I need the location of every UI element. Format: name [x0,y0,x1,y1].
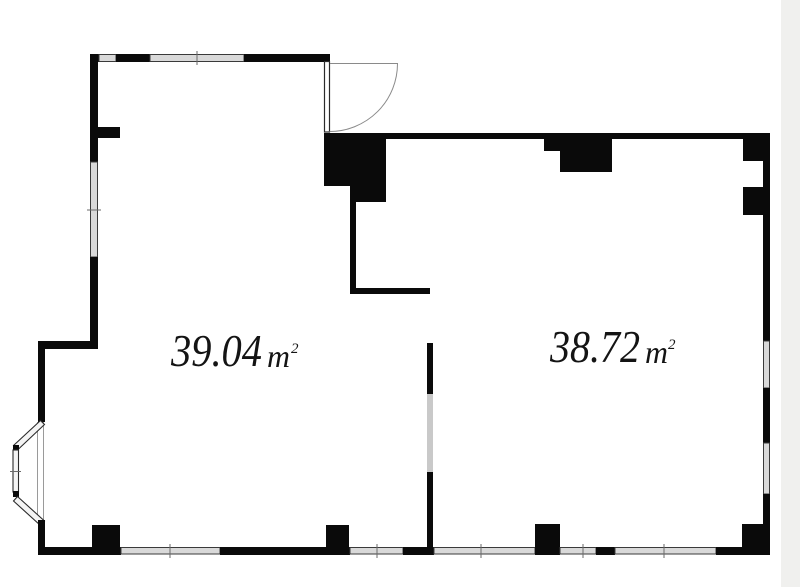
svg-text:2: 2 [291,341,299,357]
svg-text:m: m [645,334,668,370]
svg-text:2: 2 [668,337,676,353]
svg-text:38.72: 38.72 [549,321,640,372]
svg-text:39.04: 39.04 [170,325,262,376]
svg-text:m: m [267,338,290,374]
